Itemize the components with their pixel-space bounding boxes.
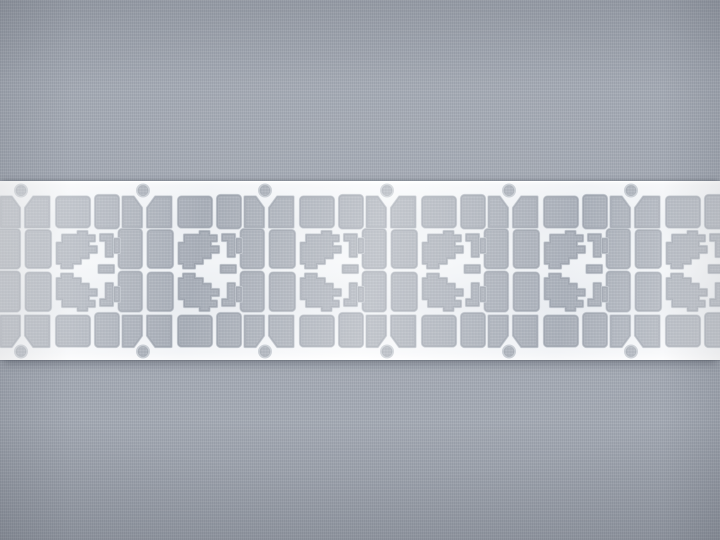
sprocket-hole [260,185,270,195]
corner-cutout-bl [392,316,416,347]
center-contact-cutout-5 [589,284,601,306]
corner-cutout-bl [514,316,538,347]
sprocket-hole [626,185,636,195]
frame-unit [625,184,720,358]
center-contact-cutout-3 [603,239,608,253]
center-contact-cutout-5 [101,284,113,306]
corner-cutout-tl [514,197,538,227]
center-contact-cutout-4 [221,266,236,273]
grid-cutout-0 [423,197,456,227]
grid-cutout-6 [423,316,456,346]
grid-cutout-5 [607,272,630,311]
sprocket-hole [16,346,26,356]
frame-unit [381,184,508,358]
grid-cutout-1 [706,196,720,229]
sprocket-hole [16,185,26,195]
grid-cutout-5 [485,272,508,311]
center-contact-cutout-4 [343,266,358,273]
grid-cutout-6 [301,316,334,346]
frame-unit [137,184,264,358]
grid-cutout-1 [340,196,363,229]
grid-cutout-4 [270,273,295,311]
grid-cutout-3 [607,230,630,269]
lead-frame-strip [0,181,720,360]
corner-cutout-bl [26,316,50,347]
center-contact-cutout-6 [237,288,242,302]
grid-cutout-0 [57,197,90,227]
frame-unit [503,184,630,358]
grid-cutout-4 [148,273,173,311]
sprocket-hole [504,185,514,195]
frame-unit [15,184,142,358]
grid-cutout-5 [0,272,20,311]
grid-cutout-0 [301,197,334,227]
center-contact-cutout-4 [587,266,602,273]
grid-cutout-1 [218,196,241,229]
grid-cutout-2 [148,231,173,268]
grid-cutout-2 [392,231,417,268]
center-contact-cutout-2 [223,235,235,257]
center-contact-cutout-2 [101,235,113,257]
corner-cutout-tl [270,197,294,227]
grid-cutout-1 [96,196,119,229]
center-contact-cutout-2 [589,235,601,257]
sprocket-hole [260,346,270,356]
grid-cutout-4 [514,273,539,311]
frame-unit [0,184,20,358]
center-contact-cutout-4 [465,266,480,273]
center-contact-cutout-5 [345,284,357,306]
center-contact-cutout-5 [223,284,235,306]
sprocket-hole [138,346,148,356]
center-contact-cutout-5 [467,284,479,306]
center-contact-cutout-3 [237,239,242,253]
grid-cutout-3 [241,230,264,269]
sprocket-hole [504,346,514,356]
grid-cutout-3 [485,230,508,269]
grid-cutout-1 [462,196,485,229]
center-contact-cutout-3 [115,239,120,253]
grid-cutout-2 [26,231,51,268]
sprocket-hole [138,185,148,195]
grid-cutout-7 [462,314,485,347]
corner-cutout-bl [270,316,294,347]
sprocket-hole [382,185,392,195]
corner-cutout-tl [636,197,660,227]
grid-cutout-6 [179,316,212,346]
grid-cutout-0 [667,197,700,227]
grid-cutout-7 [96,314,119,347]
grid-cutout-5 [241,272,264,311]
grid-cutout-6 [57,316,90,346]
center-contact-cutout-6 [481,288,486,302]
center-contact-cutout-6 [359,288,364,302]
photo-scene [0,0,720,540]
grid-cutout-2 [270,231,295,268]
grid-cutout-1 [584,196,607,229]
grid-cutout-2 [636,231,661,268]
lead-frame-pattern [0,182,720,360]
grid-cutout-0 [545,197,578,227]
center-contact-cutout-6 [115,288,120,302]
center-contact-cutout-2 [345,235,357,257]
corner-cutout-tl [148,197,172,227]
grid-cutout-4 [636,273,661,311]
center-contact-cutout-2 [467,235,479,257]
center-contact-cutout-3 [481,239,486,253]
grid-cutout-4 [392,273,417,311]
grid-cutout-7 [340,314,363,347]
grid-cutout-3 [363,230,386,269]
center-contact-cutout-6 [603,288,608,302]
grid-cutout-0 [179,197,212,227]
center-contact-cutout-4 [99,266,114,273]
frame-unit [259,184,386,358]
corner-cutout-tl [392,197,416,227]
center-contact-cutout-2 [711,235,720,257]
grid-cutout-3 [0,230,20,269]
grid-cutout-5 [363,272,386,311]
center-contact-cutout-5 [711,284,720,306]
corner-cutout-bl [636,316,660,347]
grid-cutout-3 [119,230,142,269]
corner-cutout-tl [26,197,50,227]
grid-cutout-4 [26,273,51,311]
sprocket-hole [382,346,392,356]
grid-cutout-7 [218,314,241,347]
grid-cutout-6 [545,316,578,346]
sprocket-hole [626,346,636,356]
grid-cutout-7 [706,314,720,347]
center-contact-cutout-3 [359,239,364,253]
corner-cutout-bl [148,316,172,347]
grid-cutout-5 [119,272,142,311]
grid-cutout-2 [514,231,539,268]
grid-cutout-7 [584,314,607,347]
grid-cutout-6 [667,316,700,346]
center-contact-cutout-4 [709,266,720,273]
